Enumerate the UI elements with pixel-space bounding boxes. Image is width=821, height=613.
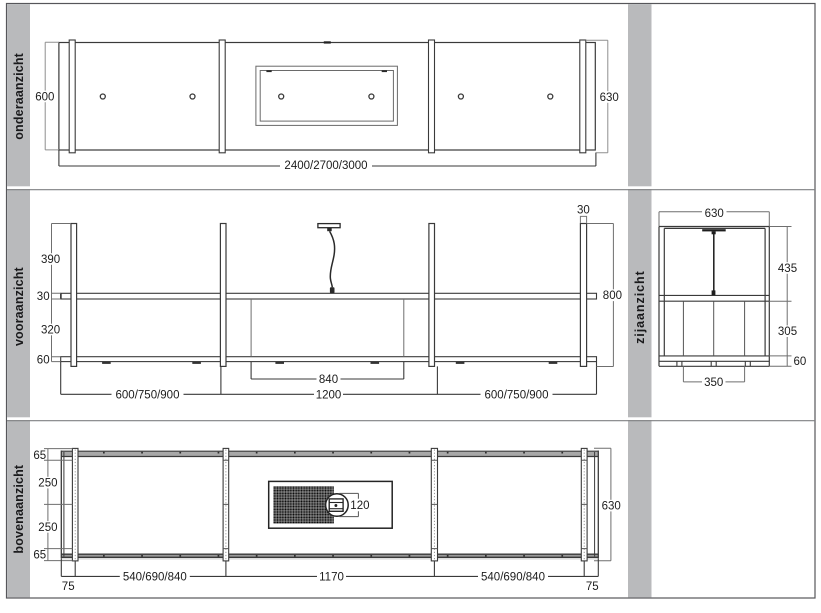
svg-text:350: 350 xyxy=(704,377,723,389)
svg-text:65: 65 xyxy=(33,450,46,462)
svg-text:305: 305 xyxy=(778,326,797,338)
svg-text:250: 250 xyxy=(38,522,57,534)
svg-text:2400/2700/3000: 2400/2700/3000 xyxy=(284,160,367,172)
svg-text:800: 800 xyxy=(603,290,622,302)
svg-text:75: 75 xyxy=(586,581,599,593)
svg-text:1170: 1170 xyxy=(319,572,344,584)
svg-text:30: 30 xyxy=(577,205,590,217)
svg-text:60: 60 xyxy=(794,356,807,368)
svg-text:600/750/900: 600/750/900 xyxy=(485,390,549,402)
svg-text:320: 320 xyxy=(41,325,60,337)
svg-text:75: 75 xyxy=(62,581,75,593)
svg-text:600/750/900: 600/750/900 xyxy=(116,390,180,402)
svg-text:onderaanzicht: onderaanzicht xyxy=(12,52,26,139)
svg-text:540/690/840: 540/690/840 xyxy=(481,572,545,584)
svg-text:630: 630 xyxy=(705,208,724,220)
svg-text:60: 60 xyxy=(37,355,50,367)
svg-text:1200: 1200 xyxy=(316,390,342,402)
svg-text:630: 630 xyxy=(602,501,621,513)
svg-text:840: 840 xyxy=(319,374,338,386)
svg-text:30: 30 xyxy=(37,291,50,303)
svg-text:600: 600 xyxy=(35,92,54,104)
svg-text:390: 390 xyxy=(41,254,60,266)
svg-text:vooraanzicht: vooraanzicht xyxy=(12,266,26,346)
svg-text:435: 435 xyxy=(778,263,797,275)
svg-text:zijaanzicht: zijaanzicht xyxy=(633,270,647,344)
svg-text:bovenaanzicht: bovenaanzicht xyxy=(12,464,26,553)
svg-text:65: 65 xyxy=(33,550,46,562)
svg-text:120: 120 xyxy=(350,500,369,512)
svg-text:540/690/840: 540/690/840 xyxy=(123,572,187,584)
svg-text:250: 250 xyxy=(38,478,57,490)
svg-text:630: 630 xyxy=(600,92,619,104)
